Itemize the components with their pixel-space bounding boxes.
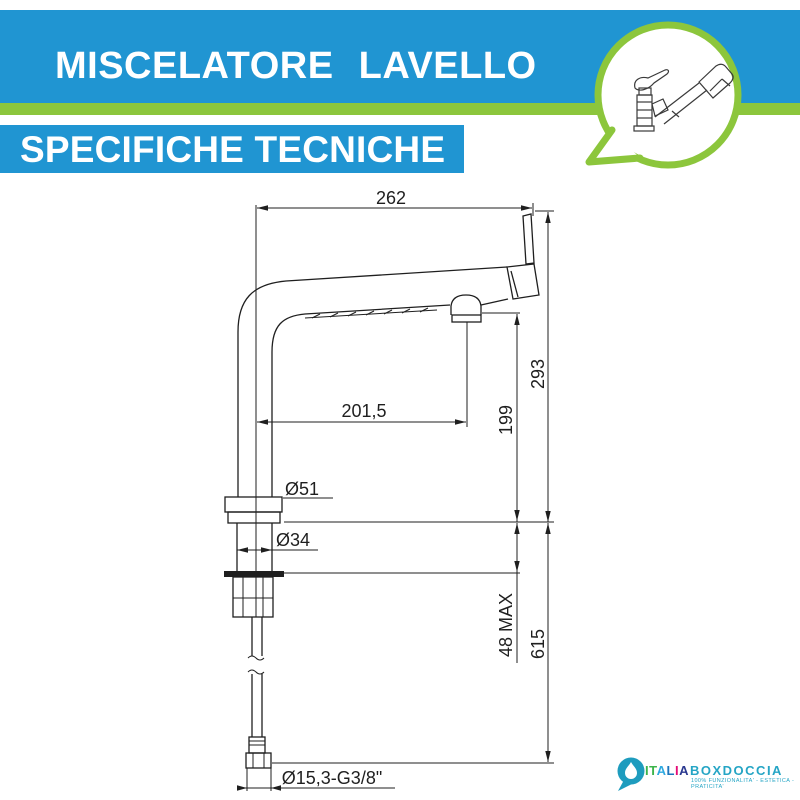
dim-total-height: 293 bbox=[529, 359, 547, 389]
brand-logo: ITALIA BOXDOCCIA 100% FUNZIONALITA' - ES… bbox=[610, 750, 795, 795]
dim-hose-thread: Ø15,3-G3/8" bbox=[282, 769, 382, 787]
logo-boxdoccia: BOXDOCCIA bbox=[690, 764, 783, 777]
dim-body-diameter: Ø34 bbox=[276, 531, 310, 549]
dim-flange-diameter: Ø51 bbox=[285, 480, 319, 498]
dim-deck-max: 48 MAX bbox=[497, 593, 515, 657]
technical-drawing bbox=[0, 0, 800, 800]
dim-spout-reach: 201,5 bbox=[341, 402, 386, 420]
spec-sheet-page: MISCELATORE LAVELLO SPECIFICHE TECNICHE bbox=[0, 0, 800, 800]
dim-total-width: 262 bbox=[376, 189, 406, 207]
logo-tagline: 100% FUNZIONALITA' - ESTETICA - PRATICIT… bbox=[691, 779, 795, 790]
logo-italia: ITALIA bbox=[645, 764, 689, 777]
dim-below-deck: 615 bbox=[529, 629, 547, 659]
faucet-outline bbox=[224, 205, 539, 768]
dim-spout-height: 199 bbox=[497, 405, 515, 435]
